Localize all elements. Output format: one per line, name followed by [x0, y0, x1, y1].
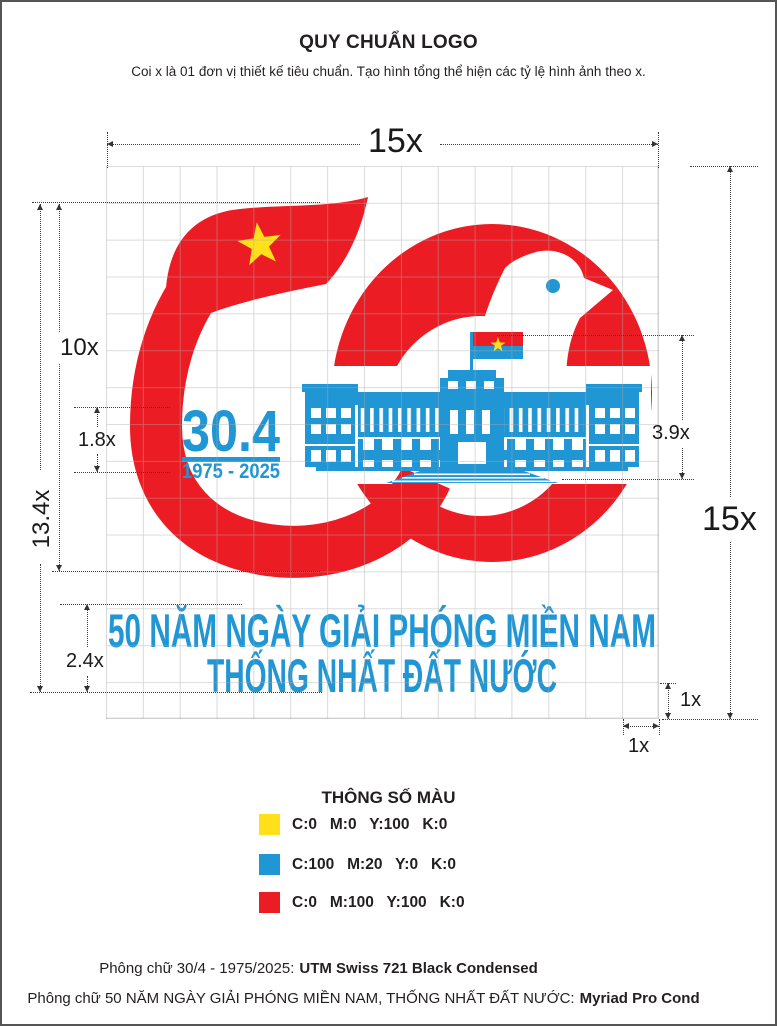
witness-logo-top: [32, 202, 320, 203]
font-note-2-font: Myriad Pro Cond: [580, 990, 700, 1007]
font-note-1-font: UTM Swiss 721 Black Condensed: [299, 960, 537, 977]
red-cmyk: C:0 M:100 Y:100 K:0: [292, 894, 465, 912]
blue-swatch: [259, 854, 280, 875]
legend-row-blue: C:100 M:20 Y:0 K:0: [259, 854, 456, 875]
yellow-cmyk: C:0 M:0 Y:100 K:0: [292, 816, 447, 834]
witness-right-bottom: [662, 719, 758, 720]
witness-top-left: [107, 132, 108, 168]
dim-line-top-r: [440, 144, 658, 145]
dim-line-right-b: [730, 542, 731, 719]
witness-building-top: [497, 335, 694, 336]
logo-spec-sheet: QUY CHUẨN LOGO Coi x là 01 đơn vị thiết …: [0, 0, 777, 1026]
dim-unit-cell-horizontal: 1x: [628, 735, 649, 758]
witness-building-bottom: [562, 479, 694, 480]
red-swatch: [259, 892, 280, 913]
dim-building-height: 3.9x: [652, 422, 690, 445]
construction-grid: [106, 166, 659, 719]
witness-total-bottom: [30, 692, 322, 693]
font-note-2: Phông chữ 50 NĂM NGÀY GIẢI PHÓNG MIỀN NA…: [0, 990, 750, 1007]
page-title: QUY CHUẨN LOGO: [2, 32, 775, 54]
font-note-1-label: Phông chữ 30/4 - 1975/2025:: [99, 960, 294, 977]
dim-slogan-block-height: 2.4x: [66, 650, 104, 673]
blue-cmyk: C:100 M:20 Y:0 K:0: [292, 856, 456, 874]
logo-artwork: 30.4 1975 - 2025 50 NĂM NGÀY GIẢI PHÓNG …: [106, 166, 659, 719]
font-note-2-label: Phông chữ 50 NĂM NGÀY GIẢI PHÓNG MIỀN NA…: [27, 990, 574, 1007]
dim-line-134x-b: [40, 564, 41, 692]
witness-logo-bottom: [52, 571, 320, 572]
dim-line-10x-b: [59, 364, 60, 571]
dim-line-right-t: [730, 166, 731, 497]
dim-total-height: 13.4x: [28, 489, 56, 549]
witness-top-right: [658, 132, 659, 168]
dim-grid-height: 15x: [702, 500, 757, 539]
dim-line-39x-t: [682, 335, 683, 420]
legend-row-red: C:0 M:100 Y:100 K:0: [259, 892, 465, 913]
logo-grid-area: 30.4 1975 - 2025 50 NĂM NGÀY GIẢI PHÓNG …: [106, 166, 659, 719]
dim-line-top-l: [107, 144, 360, 145]
dim-line-24x-t: [87, 604, 88, 647]
yellow-swatch: [259, 814, 280, 835]
font-note-1: Phông chữ 30/4 - 1975/2025:UTM Swiss 721…: [0, 960, 705, 977]
dim-grid-width: 15x: [368, 122, 423, 161]
dim-date-block-height: 1.8x: [78, 429, 116, 452]
dim-logo-mark-height: 10x: [60, 334, 99, 362]
dim-line-134x-t: [40, 204, 41, 470]
witness-1x-right: [659, 719, 660, 735]
dim-unit-cell-vertical: 1x: [680, 689, 701, 712]
legend-row-yellow: C:0 M:0 Y:100 K:0: [259, 814, 447, 835]
page-subtitle: Coi x là 01 đơn vị thiết kế tiêu chuẩn. …: [2, 64, 775, 79]
dim-line-10x-t: [59, 204, 60, 332]
witness-date-bottom: [74, 472, 170, 473]
witness-date-top: [74, 407, 170, 408]
color-legend-title: THÔNG SỐ MÀU: [2, 788, 775, 808]
witness-right-top: [690, 166, 758, 167]
